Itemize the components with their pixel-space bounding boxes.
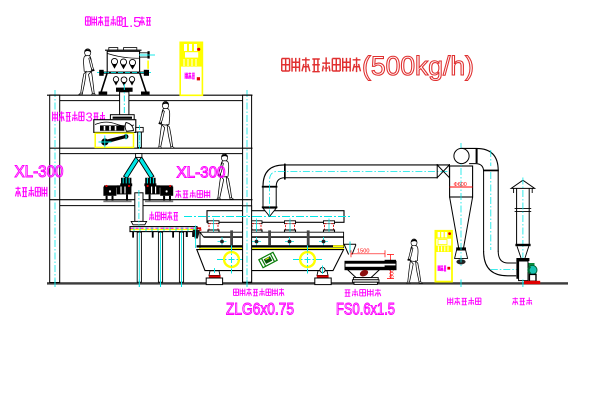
svg-text:XL-300: XL-300 [15, 162, 64, 181]
svg-text:(500kg/h): (500kg/h) [362, 51, 474, 81]
svg-text:ZLG6x0.75: ZLG6x0.75 [226, 301, 294, 319]
svg-text:XL-300: XL-300 [177, 165, 226, 182]
svg-text:1.5: 1.5 [121, 15, 141, 31]
svg-text:3: 3 [86, 110, 93, 125]
svg-text:FS0.6x1.5: FS0.6x1.5 [336, 301, 395, 319]
